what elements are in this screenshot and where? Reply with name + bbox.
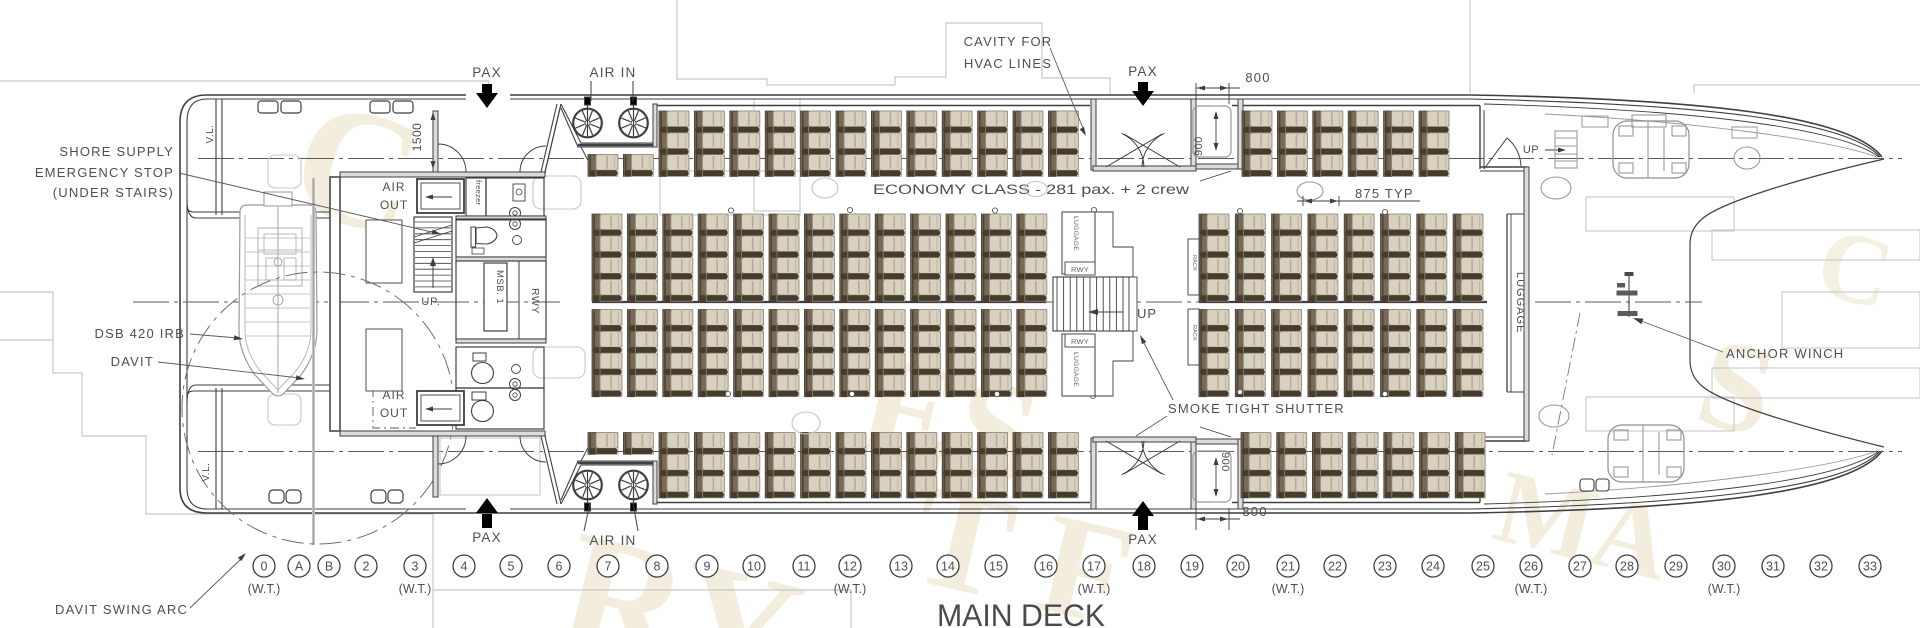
svg-text:6: 6	[556, 560, 563, 574]
svg-text:800: 800	[1245, 70, 1270, 85]
svg-text:25: 25	[1476, 560, 1490, 574]
svg-text:RY: RY	[543, 495, 818, 628]
svg-text:29: 29	[1669, 560, 1683, 574]
svg-text:EMERGENCY STOP: EMERGENCY STOP	[35, 165, 174, 180]
svg-text:ANCHOR WINCH: ANCHOR WINCH	[1726, 346, 1844, 361]
svg-text:19: 19	[1185, 560, 1199, 574]
svg-text:800: 800	[1242, 504, 1267, 519]
svg-text:RACK: RACK	[1191, 255, 1197, 271]
svg-text:A: A	[295, 560, 304, 574]
svg-text:OUT: OUT	[380, 198, 408, 212]
svg-text:freezer: freezer	[474, 180, 483, 206]
svg-text:LUGGAGE: LUGGAGE	[1072, 216, 1079, 251]
svg-text:900: 900	[1219, 452, 1231, 472]
svg-text:PAX: PAX	[1128, 532, 1158, 547]
svg-text:8: 8	[654, 560, 661, 574]
svg-text:17: 17	[1087, 560, 1101, 574]
svg-text:(W.T.): (W.T.)	[399, 582, 432, 596]
svg-text:(W.T.): (W.T.)	[248, 582, 281, 596]
svg-text:31: 31	[1766, 560, 1780, 574]
svg-text:28: 28	[1620, 560, 1634, 574]
svg-text:SHORE SUPPLY: SHORE SUPPLY	[59, 144, 174, 159]
svg-text:20: 20	[1231, 560, 1245, 574]
svg-text:(W.T.): (W.T.)	[1708, 582, 1741, 596]
svg-text:21: 21	[1281, 560, 1295, 574]
svg-text:875 TYP: 875 TYP	[1355, 186, 1414, 201]
svg-text:LUGGAGE: LUGGAGE	[1072, 352, 1079, 387]
svg-text:RWY: RWY	[1071, 265, 1089, 274]
svg-text:(UNDER STAIRS): (UNDER STAIRS)	[53, 185, 174, 200]
svg-text:RACK: RACK	[1191, 325, 1197, 341]
svg-text:PAX: PAX	[1128, 64, 1158, 79]
svg-text:3: 3	[412, 560, 419, 574]
svg-text:ECONOMY CLASS - 281 pax. + 2 c: ECONOMY CLASS - 281 pax. + 2 crew	[873, 182, 1189, 197]
svg-text:13: 13	[894, 560, 908, 574]
svg-text:(W.T.): (W.T.)	[1272, 582, 1305, 596]
svg-text:1500: 1500	[410, 123, 424, 152]
svg-text:PAX: PAX	[472, 530, 502, 545]
svg-text:MA: MA	[1484, 447, 1682, 603]
svg-text:RWY: RWY	[1071, 337, 1089, 346]
svg-text:RWY: RWY	[529, 288, 541, 314]
svg-text:4: 4	[461, 560, 468, 574]
svg-text:(W.T.): (W.T.)	[1078, 582, 1111, 596]
svg-text:900: 900	[1193, 136, 1205, 156]
svg-text:15: 15	[989, 560, 1003, 574]
svg-text:DAVIT: DAVIT	[111, 354, 154, 369]
svg-text:C: C	[1807, 206, 1904, 331]
svg-text:B: B	[325, 560, 333, 574]
svg-text:16: 16	[1039, 560, 1053, 574]
svg-text:AIR IN: AIR IN	[590, 533, 637, 548]
svg-text:10: 10	[747, 560, 761, 574]
svg-text:V.L.: V.L.	[205, 125, 216, 144]
svg-text:MSB. 1: MSB. 1	[494, 270, 505, 304]
svg-text:LUGGAGE: LUGGAGE	[1514, 272, 1526, 333]
svg-text:(W.T.): (W.T.)	[834, 582, 867, 596]
svg-text:14: 14	[941, 560, 955, 574]
svg-text:DSB 420 IRB: DSB 420 IRB	[94, 326, 185, 341]
svg-text:SMOKE TIGHT SHUTTER: SMOKE TIGHT SHUTTER	[1168, 401, 1345, 416]
svg-text:DAVIT SWING ARC: DAVIT SWING ARC	[55, 602, 188, 617]
svg-text:7: 7	[605, 560, 612, 574]
svg-text:32: 32	[1814, 560, 1828, 574]
svg-text:22: 22	[1328, 560, 1342, 574]
svg-text:27: 27	[1573, 560, 1587, 574]
svg-text:11: 11	[798, 560, 811, 574]
svg-text:0: 0	[261, 560, 268, 574]
svg-text:24: 24	[1426, 560, 1440, 574]
svg-text:AIR: AIR	[382, 180, 405, 194]
svg-text:S: S	[1685, 309, 1788, 464]
svg-text:5: 5	[508, 560, 515, 574]
svg-text:26: 26	[1524, 560, 1538, 574]
svg-text:UP: UP	[1523, 144, 1539, 156]
svg-text:AIR IN: AIR IN	[590, 65, 637, 80]
svg-text:UP: UP	[1137, 306, 1157, 321]
svg-text:(W.T.): (W.T.)	[1515, 582, 1548, 596]
svg-text:MAIN DECK: MAIN DECK	[937, 597, 1105, 628]
svg-text:V.L.: V.L.	[201, 463, 212, 482]
svg-text:33: 33	[1863, 560, 1877, 574]
svg-text:CAVITY FOR: CAVITY FOR	[964, 34, 1053, 49]
svg-text:9: 9	[704, 560, 711, 574]
svg-text:30: 30	[1717, 560, 1731, 574]
svg-text:2: 2	[363, 560, 370, 574]
svg-text:18: 18	[1137, 560, 1151, 574]
svg-text:OUT: OUT	[380, 406, 408, 420]
svg-text:PAX: PAX	[472, 65, 502, 80]
svg-text:UP.: UP.	[421, 296, 440, 308]
svg-text:HVAC LINES: HVAC LINES	[964, 56, 1052, 71]
svg-text:AIR: AIR	[382, 388, 405, 402]
svg-text:23: 23	[1378, 560, 1392, 574]
svg-text:12: 12	[843, 560, 857, 574]
